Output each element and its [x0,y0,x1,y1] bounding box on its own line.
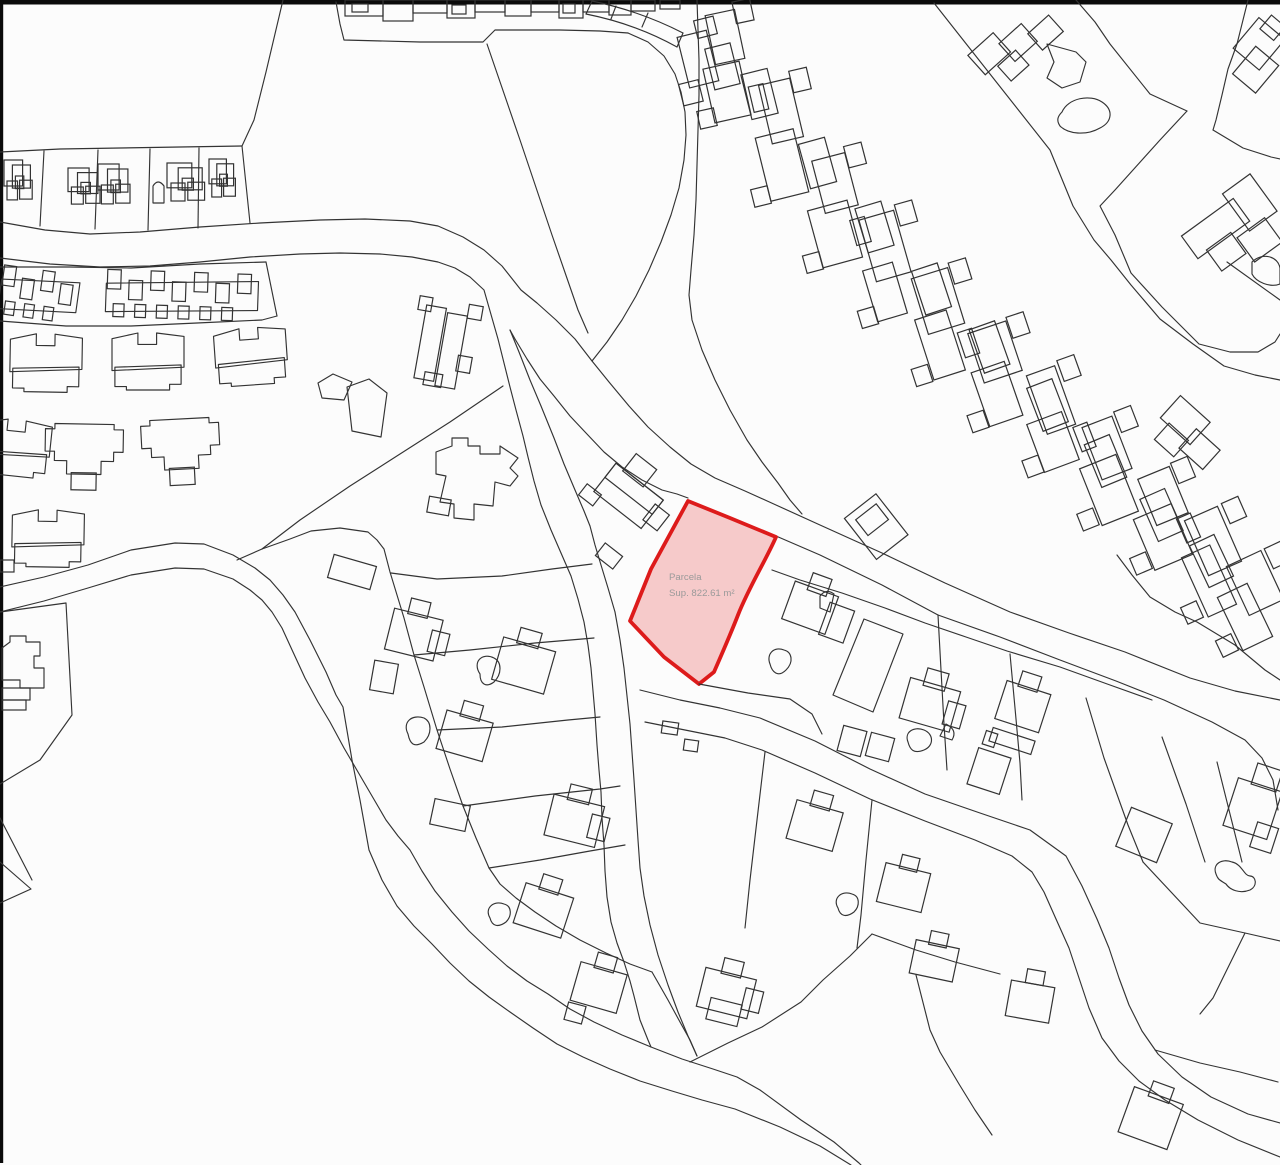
svg-text:Parcela: Parcela [669,572,702,583]
svg-text:Sup. 822.61 m²: Sup. 822.61 m² [669,588,735,599]
